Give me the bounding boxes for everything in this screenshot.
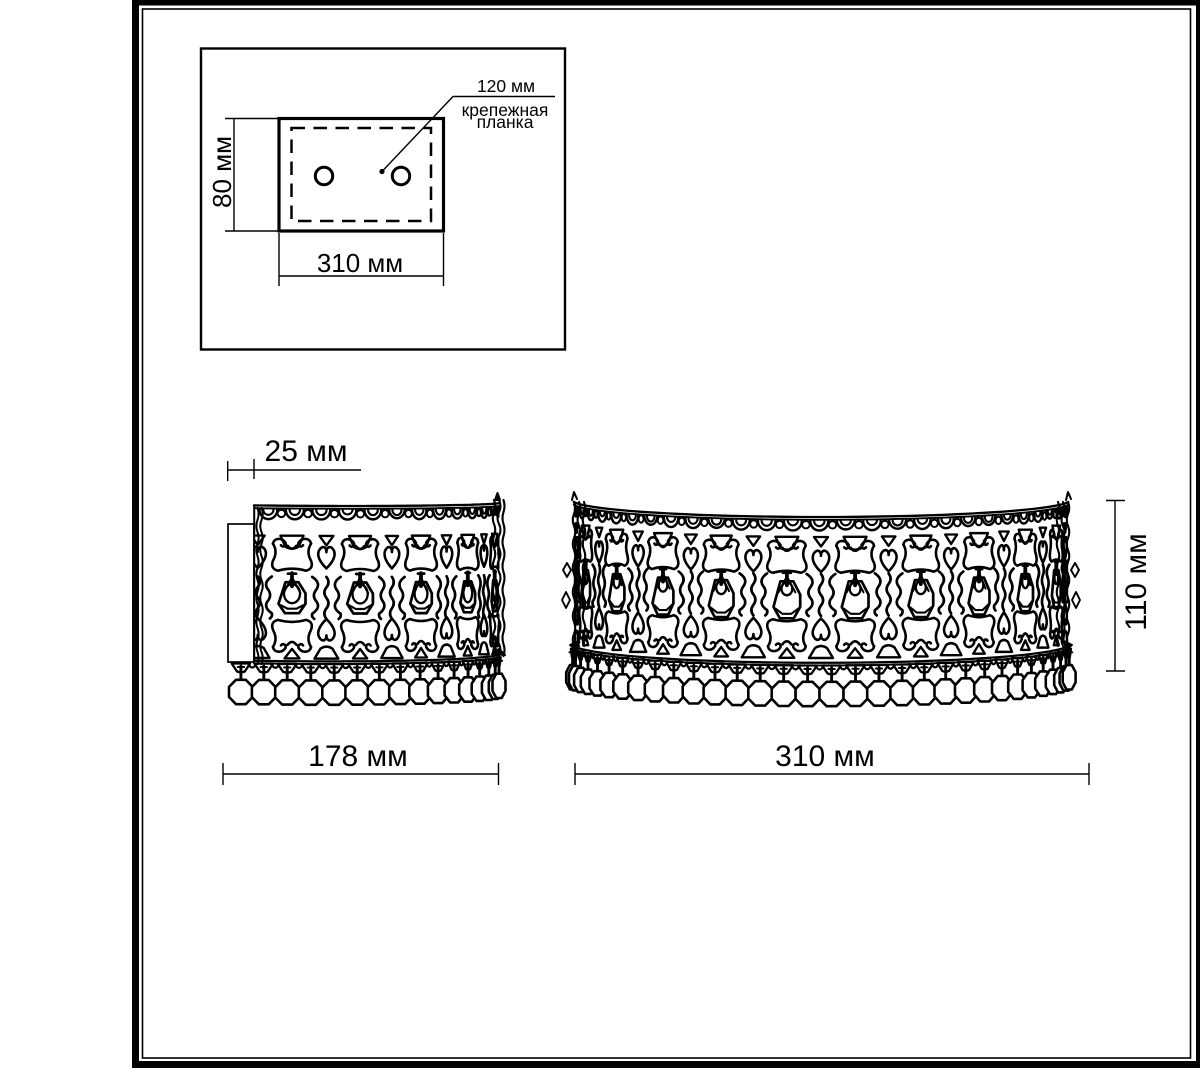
- svg-text:178 мм: 178 мм: [308, 740, 408, 773]
- svg-text:310 мм: 310 мм: [775, 740, 875, 773]
- svg-text:80 мм: 80 мм: [207, 136, 237, 208]
- svg-text:310 мм: 310 мм: [317, 248, 403, 278]
- svg-text:25 мм: 25 мм: [265, 435, 348, 468]
- svg-text:110 мм: 110 мм: [1120, 533, 1153, 630]
- svg-text:планка: планка: [477, 112, 534, 132]
- svg-text:120 мм: 120 мм: [477, 76, 535, 96]
